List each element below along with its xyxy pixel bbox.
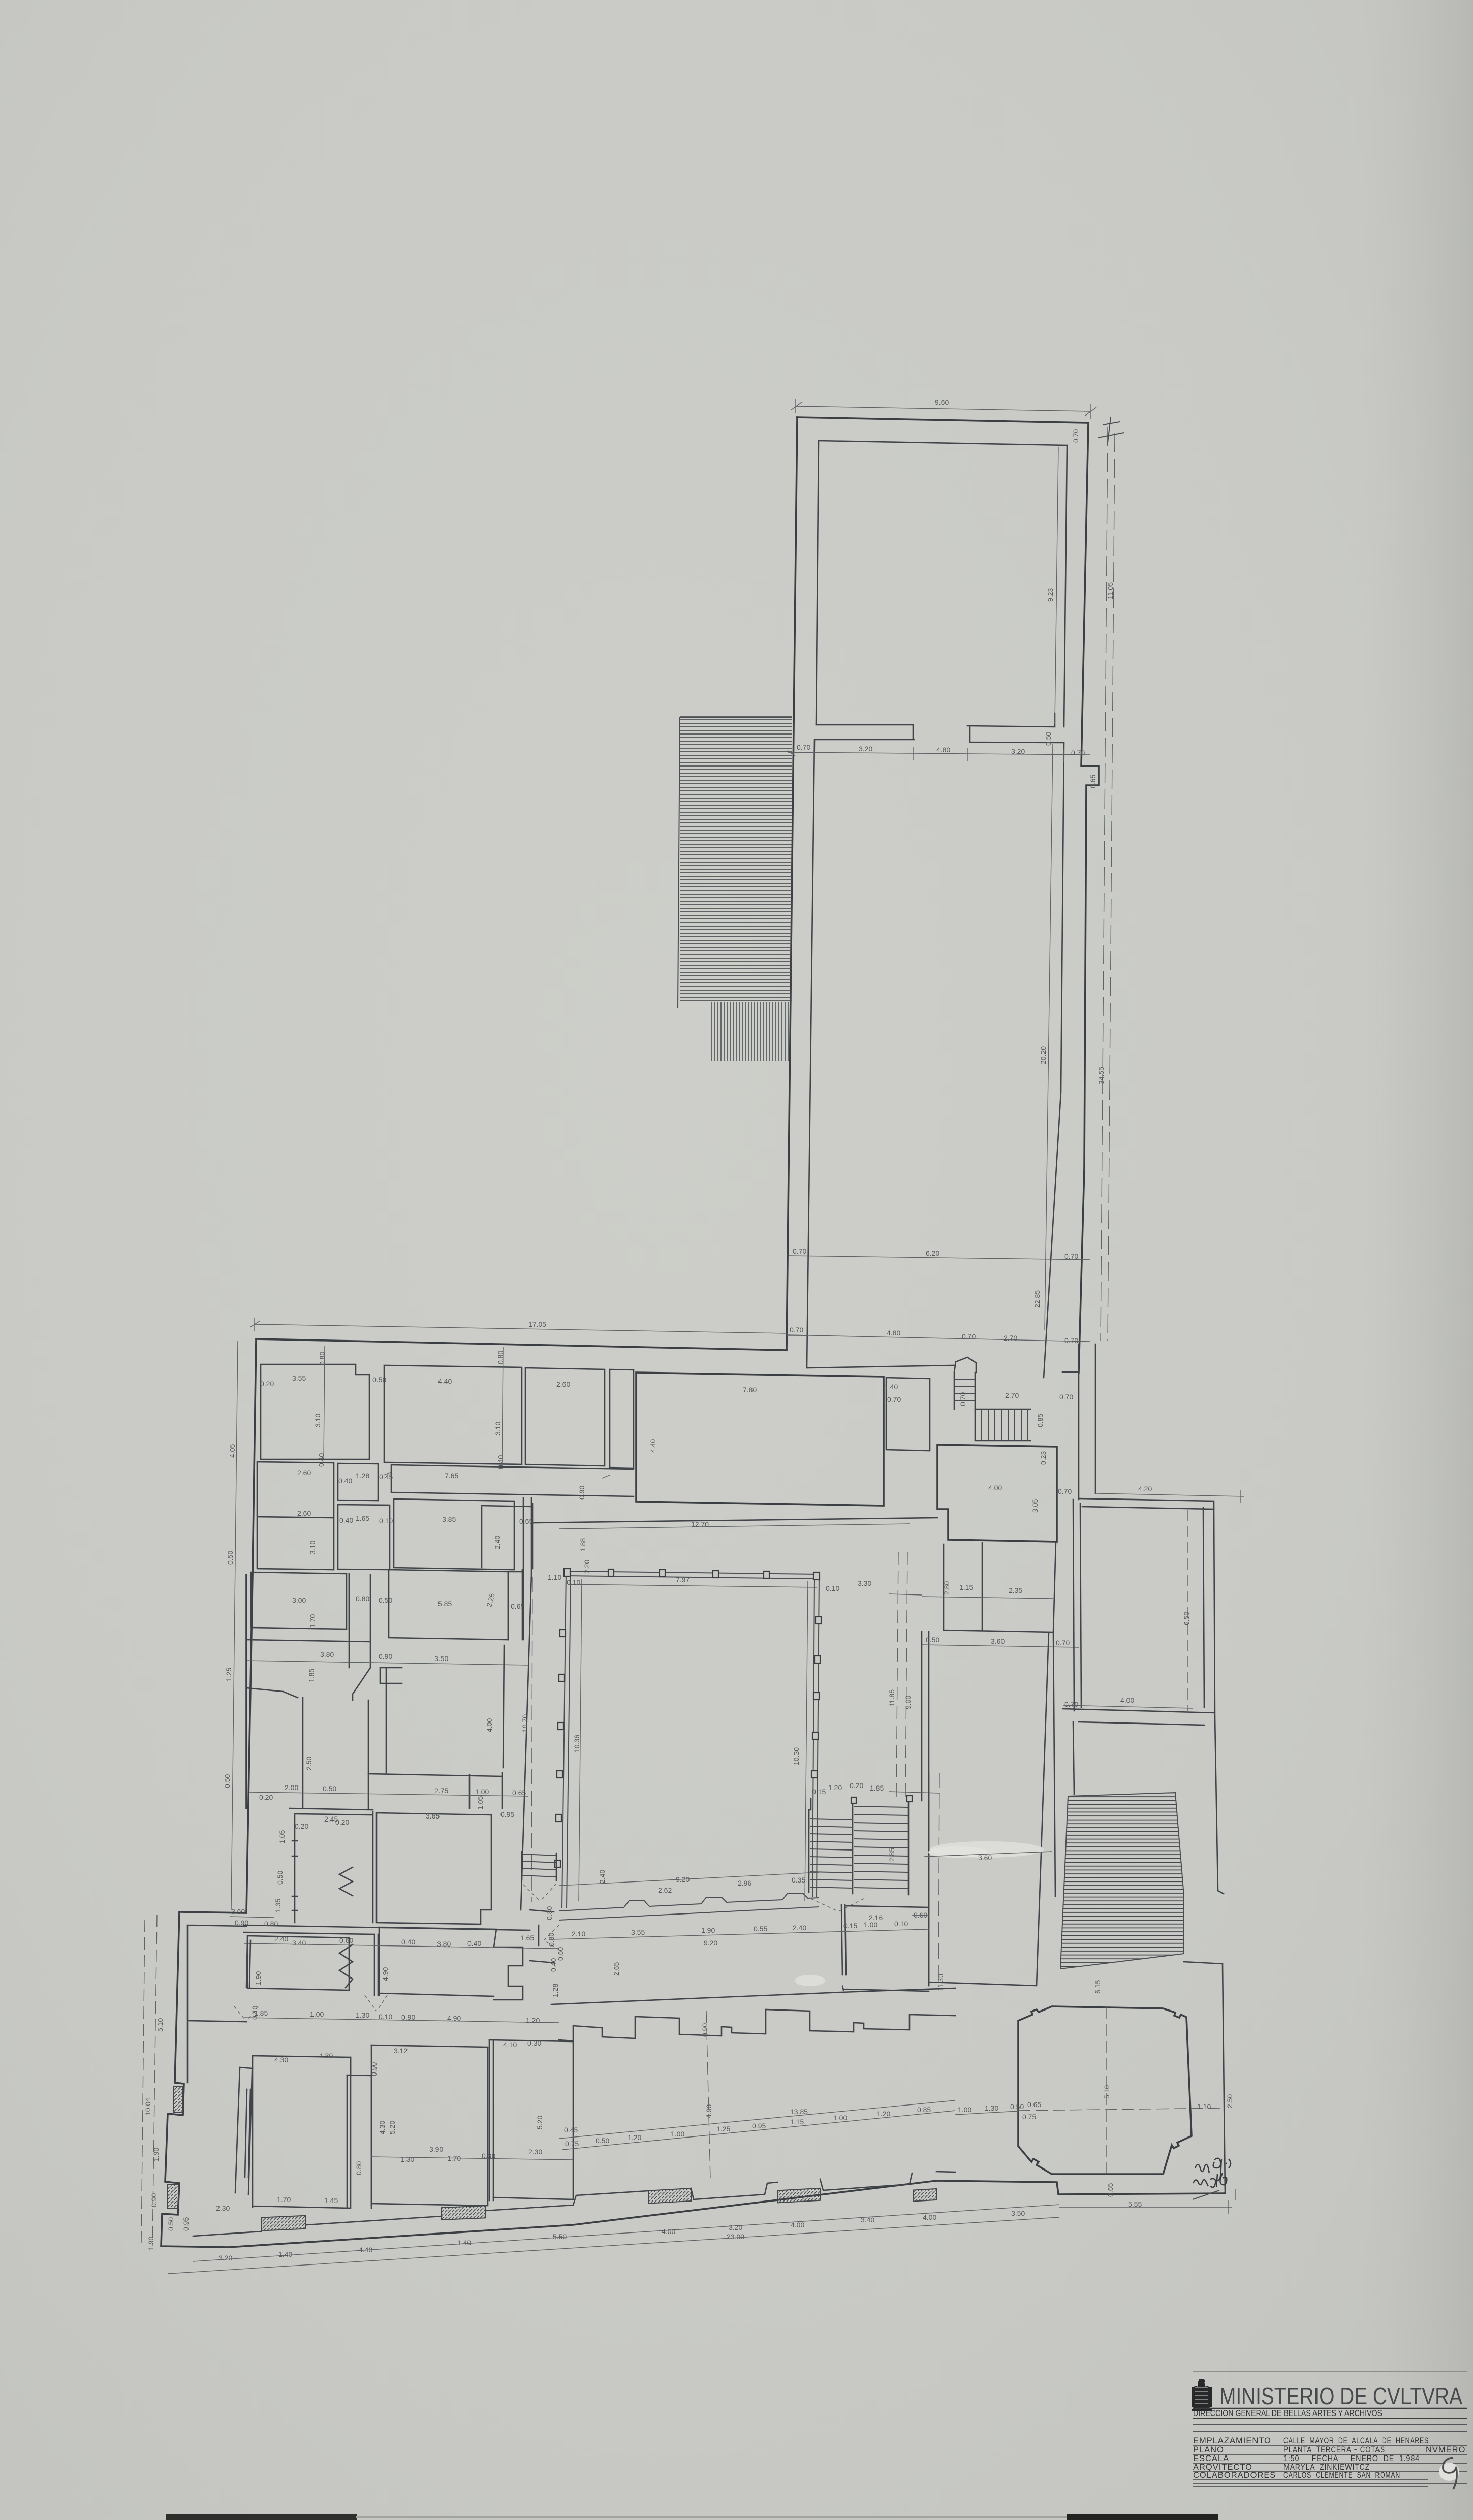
svg-text:0.40: 0.40	[496, 1455, 505, 1469]
svg-text:9.60: 9.60	[935, 398, 949, 406]
svg-text:2.40: 2.40	[493, 1536, 502, 1549]
svg-text:3.20: 3.20	[859, 745, 872, 753]
svg-text:5.10: 5.10	[1103, 2085, 1111, 2099]
svg-text:2.50: 2.50	[305, 1757, 313, 1770]
svg-text:0.10: 0.10	[894, 1920, 908, 1928]
svg-text:6.20: 6.20	[926, 1249, 939, 1257]
svg-text:7.65: 7.65	[445, 1472, 458, 1480]
svg-text:3.65: 3.65	[426, 1812, 440, 1820]
svg-text:1.15: 1.15	[959, 1583, 973, 1591]
svg-text:1.30: 1.30	[985, 2104, 998, 2112]
svg-text:0.85: 0.85	[917, 2106, 931, 2114]
svg-text:3.90: 3.90	[429, 2145, 443, 2153]
svg-text:2.65: 2.65	[612, 1962, 620, 1976]
svg-text:2.30: 2.30	[528, 2148, 542, 2156]
svg-text:1.25: 1.25	[716, 2125, 730, 2133]
svg-text:20.20: 20.20	[1039, 1046, 1047, 1064]
svg-text:0.50: 0.50	[276, 1871, 284, 1885]
svg-text:4.05: 4.05	[228, 1444, 236, 1458]
svg-text:0.70: 0.70	[1064, 1700, 1078, 1708]
svg-text:0.20: 0.20	[295, 1822, 308, 1830]
svg-text:1.85: 1.85	[870, 1784, 884, 1792]
svg-text:4.00: 4.00	[662, 2227, 675, 2236]
svg-text:5.20: 5.20	[388, 2121, 396, 2134]
svg-text:3.20: 3.20	[1011, 747, 1025, 755]
svg-text:1.20: 1.20	[628, 2133, 641, 2142]
svg-text:7.97: 7.97	[676, 1576, 690, 1584]
svg-text:0.70: 0.70	[797, 743, 810, 751]
svg-text:0.40: 0.40	[401, 1938, 415, 1946]
svg-text:4.90: 4.90	[447, 2014, 461, 2022]
svg-text:2.50: 2.50	[1226, 2094, 1234, 2108]
svg-text:3.05: 3.05	[1031, 1499, 1039, 1513]
svg-text:0.80: 0.80	[356, 1594, 369, 1603]
svg-text:4.40: 4.40	[649, 1439, 657, 1453]
svg-text:0.50: 0.50	[226, 1551, 234, 1565]
svg-text:1.30: 1.30	[356, 2011, 369, 2019]
svg-text:0.70: 0.70	[1056, 1639, 1070, 1647]
svg-text:0.40: 0.40	[467, 1939, 481, 1948]
svg-text:3.10: 3.10	[494, 1422, 502, 1436]
svg-text:2.10: 2.10	[572, 1930, 585, 1938]
svg-text:0.80: 0.80	[545, 1906, 553, 1920]
svg-text:2.60: 2.60	[297, 1469, 311, 1477]
svg-text:3.55: 3.55	[631, 1928, 645, 1936]
svg-text:17.05: 17.05	[528, 1320, 546, 1328]
svg-text:4.00: 4.00	[988, 1484, 1002, 1492]
svg-text:1.05: 1.05	[278, 1830, 286, 1844]
svg-text:3.60: 3.60	[991, 1637, 1005, 1645]
svg-text:1.70: 1.70	[308, 1614, 317, 1628]
svg-text:1.25: 1.25	[225, 1668, 233, 1681]
svg-text:0.65: 0.65	[511, 1602, 524, 1610]
svg-text:EMPLAZAMIENTO: EMPLAZAMIENTO	[1193, 2436, 1271, 2445]
svg-text:0.45: 0.45	[564, 2126, 578, 2134]
svg-text:0.10: 0.10	[379, 2013, 392, 2021]
svg-text:9.20: 9.20	[704, 1939, 717, 1947]
svg-text:0.90: 0.90	[370, 2062, 378, 2076]
svg-text:2.60: 2.60	[297, 1509, 311, 1517]
svg-text:NVMERO: NVMERO	[1426, 2445, 1465, 2454]
svg-text:0.70: 0.70	[1064, 1252, 1078, 1260]
svg-text:1.00: 1.00	[958, 2106, 971, 2114]
svg-text:2.75: 2.75	[434, 1787, 448, 1795]
svg-text:3.85: 3.85	[442, 1515, 456, 1523]
svg-text:0.50: 0.50	[167, 2217, 175, 2231]
svg-text:0.70: 0.70	[959, 1392, 967, 1406]
svg-text:1.45: 1.45	[324, 2196, 338, 2205]
svg-text:0.15: 0.15	[812, 1788, 826, 1796]
svg-text:2.96: 2.96	[738, 1879, 751, 1887]
svg-text:4.00: 4.00	[485, 1718, 493, 1732]
svg-text:9.20: 9.20	[676, 1875, 690, 1884]
svg-text:4.80: 4.80	[887, 1329, 900, 1337]
svg-text:0.30: 0.30	[527, 2039, 541, 2047]
svg-text:1.40: 1.40	[278, 2250, 292, 2258]
svg-text:3.60: 3.60	[231, 1907, 245, 1916]
svg-text:1.10: 1.10	[548, 1573, 561, 1581]
svg-text:0.50: 0.50	[379, 1596, 392, 1604]
svg-text:0.35: 0.35	[792, 1876, 805, 1884]
svg-text:1.20: 1.20	[876, 2110, 890, 2118]
svg-text:1.05: 1.05	[476, 1796, 484, 1810]
svg-text:1.90: 1.90	[152, 2148, 160, 2161]
svg-text:0.60: 0.60	[556, 1947, 565, 1961]
svg-text:2.80: 2.80	[943, 1581, 951, 1595]
svg-text:0.95: 0.95	[182, 2217, 190, 2231]
svg-text:11.05: 11.05	[1106, 582, 1114, 599]
svg-text:1.90: 1.90	[254, 1971, 262, 1985]
svg-text:10.30: 10.30	[792, 1747, 800, 1765]
svg-text:DIRECCION GENERAL DE BELLAS AR: DIRECCION GENERAL DE BELLAS ARTES Y ARCH…	[1193, 2408, 1382, 2418]
svg-text:3.10: 3.10	[314, 1414, 322, 1427]
svg-text:0.75: 0.75	[1022, 2113, 1036, 2121]
svg-text:0.90: 0.90	[150, 2193, 158, 2207]
svg-text:10.70: 10.70	[521, 1714, 529, 1732]
svg-text:2.85: 2.85	[888, 1848, 896, 1862]
svg-text:0.90: 0.90	[401, 2013, 415, 2021]
svg-text:0.70: 0.70	[790, 1326, 803, 1334]
svg-text:1.00: 1.00	[475, 1788, 489, 1796]
svg-text:2.60: 2.60	[556, 1380, 570, 1388]
svg-text:0.95: 0.95	[500, 1810, 514, 1819]
svg-text:2.70: 2.70	[1004, 1334, 1017, 1342]
svg-text:1.70: 1.70	[277, 2195, 291, 2204]
svg-text:34.55: 34.55	[1097, 1067, 1105, 1084]
svg-text:0.65: 0.65	[1027, 2100, 1041, 2109]
svg-text:11.85: 11.85	[888, 1689, 896, 1707]
svg-text:0.90: 0.90	[701, 2023, 709, 2037]
svg-text:9.00: 9.00	[904, 1696, 912, 1709]
svg-text:0.15: 0.15	[843, 1922, 857, 1930]
svg-text:3.30: 3.30	[858, 1579, 871, 1587]
svg-text:2.62: 2.62	[658, 1886, 672, 1894]
svg-text:1.90: 1.90	[701, 1926, 715, 1934]
svg-text:0.70: 0.70	[1058, 1487, 1072, 1495]
svg-text:0.50: 0.50	[223, 1774, 231, 1788]
svg-text:0.20: 0.20	[850, 1781, 863, 1790]
svg-text:3.00: 3.00	[292, 1596, 306, 1604]
svg-text:1.10: 1.10	[1197, 2102, 1211, 2111]
svg-text:1.40: 1.40	[884, 1383, 898, 1391]
svg-text:2.40: 2.40	[274, 1935, 288, 1943]
svg-text:0.50: 0.50	[596, 2136, 609, 2145]
svg-text:3.50: 3.50	[1011, 2209, 1025, 2217]
svg-text:1.28: 1.28	[356, 1472, 369, 1480]
svg-text:0.10: 0.10	[567, 1578, 580, 1586]
svg-text:6.15: 6.15	[1093, 1980, 1102, 1994]
svg-text:3.40: 3.40	[292, 1939, 306, 1947]
svg-text:0.90: 0.90	[379, 1652, 392, 1661]
svg-text:0.70: 0.70	[1064, 1336, 1078, 1345]
svg-text:22.85: 22.85	[1033, 1290, 1041, 1308]
svg-text:0.70: 0.70	[1072, 429, 1080, 443]
svg-text:5.85: 5.85	[438, 1600, 452, 1608]
svg-text:3.55: 3.55	[292, 1374, 306, 1382]
svg-text:1.65: 1.65	[356, 1514, 369, 1522]
svg-text:2.35: 2.35	[1009, 1586, 1022, 1594]
svg-text:4.30: 4.30	[378, 2121, 386, 2134]
svg-text:1.20: 1.20	[828, 1783, 842, 1792]
svg-text:PLANO: PLANO	[1193, 2445, 1224, 2454]
svg-text:1.85: 1.85	[254, 2009, 268, 2017]
svg-text:2.40: 2.40	[793, 1924, 806, 1932]
svg-text:1.00: 1.00	[310, 2010, 324, 2018]
svg-text:0.70: 0.70	[1071, 749, 1085, 757]
svg-text:1.20: 1.20	[526, 2016, 540, 2024]
svg-text:0.65: 0.65	[1089, 775, 1097, 788]
svg-text:0.40: 0.40	[338, 1477, 352, 1485]
svg-text:0.50: 0.50	[372, 1376, 386, 1384]
svg-text:2.30: 2.30	[216, 2204, 230, 2212]
svg-text:6.50: 6.50	[1182, 1612, 1190, 1625]
svg-text:1.15: 1.15	[790, 2118, 804, 2126]
svg-text:1.35: 1.35	[274, 1899, 282, 1912]
svg-text:4.90: 4.90	[381, 1967, 389, 1981]
svg-text:5.50: 5.50	[553, 2232, 567, 2241]
svg-text:3.40: 3.40	[861, 2216, 874, 2224]
svg-text:7.80: 7.80	[743, 1386, 757, 1394]
svg-text:0.10: 0.10	[379, 1517, 393, 1525]
svg-text:0.70: 0.70	[962, 1332, 976, 1341]
svg-text:13.85: 13.85	[790, 2108, 808, 2116]
svg-text:1.00: 1.00	[864, 1921, 877, 1929]
svg-text:0.80: 0.80	[318, 1352, 326, 1365]
svg-text:3.80: 3.80	[320, 1650, 334, 1658]
svg-text:1.85: 1.85	[307, 1669, 316, 1682]
svg-text:4.80: 4.80	[936, 746, 950, 754]
svg-text:0.20: 0.20	[259, 1793, 273, 1801]
svg-text:5.20: 5.20	[536, 2116, 544, 2129]
svg-text:1.90: 1.90	[147, 2237, 155, 2250]
svg-text:4.30: 4.30	[274, 2056, 288, 2064]
svg-text:0.40: 0.40	[339, 1516, 353, 1524]
svg-text:3.10: 3.10	[308, 1541, 317, 1554]
svg-text:2.70: 2.70	[1005, 1391, 1019, 1399]
svg-text:1.40: 1.40	[457, 2239, 471, 2247]
svg-text:5.10: 5.10	[156, 2018, 164, 2032]
svg-text:1.30: 1.30	[400, 2155, 414, 2163]
svg-text:0.20: 0.20	[335, 1818, 349, 1826]
svg-text:0.70: 0.70	[1059, 1393, 1073, 1401]
svg-text:9.23: 9.23	[1046, 588, 1054, 602]
svg-text:2.00: 2.00	[285, 1783, 298, 1792]
svg-text:1.00: 1.00	[833, 2114, 847, 2122]
svg-text:4.40: 4.40	[359, 2246, 372, 2254]
svg-text:4.10: 4.10	[503, 2040, 517, 2049]
svg-text:10.36: 10.36	[573, 1735, 581, 1752]
svg-text:1:50 FECHA ENERO DE: 1:50 FECHA ENERO DE 1.984	[1283, 2454, 1420, 2463]
svg-text:0.10: 0.10	[826, 1584, 839, 1592]
svg-text:0.55: 0.55	[754, 1925, 767, 1933]
svg-text:3.20: 3.20	[218, 2254, 232, 2262]
svg-text:0.95: 0.95	[752, 2122, 766, 2130]
svg-text:0.60: 0.60	[339, 1936, 353, 1944]
svg-text:2.40: 2.40	[598, 1870, 606, 1884]
svg-text:3.20: 3.20	[729, 2223, 742, 2231]
svg-text:3.50: 3.50	[434, 1654, 448, 1663]
svg-text:0.65: 0.65	[1106, 2183, 1114, 2197]
svg-text:ESCALA: ESCALA	[1193, 2454, 1229, 2463]
svg-text:1.88: 1.88	[579, 1538, 587, 1552]
svg-text:CALLE MAYOR DE ALCALA DE: CALLE MAYOR DE ALCALA DE HENARES	[1283, 2436, 1429, 2445]
svg-text:1.28: 1.28	[551, 1984, 559, 1997]
svg-text:4.00: 4.00	[923, 2213, 936, 2221]
svg-text:PLANTA TERCERA ~ COTAS: PLANTA TERCERA ~ COTAS	[1283, 2445, 1385, 2454]
svg-text:0.50: 0.50	[1044, 732, 1052, 746]
svg-text:4.20: 4.20	[1138, 1485, 1152, 1493]
svg-text:0.80: 0.80	[355, 2161, 363, 2175]
svg-text:0.80: 0.80	[264, 1920, 278, 1928]
svg-text:0.20: 0.20	[260, 1380, 274, 1388]
svg-text:0.70: 0.70	[793, 1247, 806, 1255]
svg-text:0.85: 0.85	[1036, 1414, 1044, 1427]
svg-text:0.75: 0.75	[565, 2140, 579, 2148]
svg-text:1.30: 1.30	[319, 2052, 333, 2060]
svg-text:0.90: 0.90	[578, 1486, 586, 1500]
svg-text:0.23: 0.23	[1039, 1451, 1047, 1465]
svg-text:23.00: 23.00	[727, 2232, 744, 2241]
svg-text:4.00: 4.00	[791, 2221, 804, 2229]
svg-text:4.40: 4.40	[438, 1377, 452, 1385]
svg-text:0.50: 0.50	[1010, 2102, 1024, 2111]
svg-text:3.12: 3.12	[394, 2047, 408, 2055]
svg-text:10.04: 10.04	[144, 2098, 152, 2116]
svg-text:0.70: 0.70	[887, 1395, 901, 1403]
svg-text:0.50: 0.50	[323, 1784, 336, 1793]
svg-text:12.70: 12.70	[691, 1520, 709, 1528]
svg-text:1.00: 1.00	[671, 2130, 684, 2138]
svg-text:4.00: 4.00	[1120, 1696, 1134, 1704]
svg-text:0.50: 0.50	[926, 1636, 939, 1644]
svg-text:MINISTERIO DE CVLTVRA: MINISTERIO DE CVLTVRA	[1219, 2383, 1462, 2409]
svg-text:1.65: 1.65	[520, 1934, 534, 1942]
svg-text:3.60: 3.60	[978, 1854, 992, 1862]
